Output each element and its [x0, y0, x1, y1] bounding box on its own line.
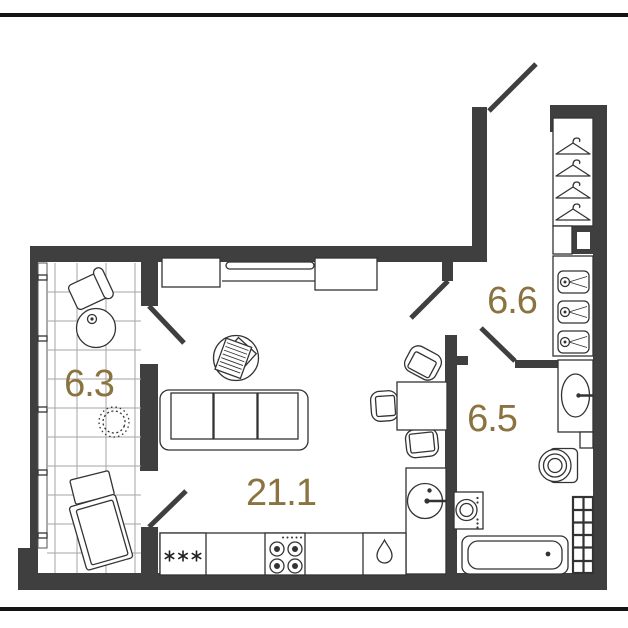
tv-icon: [226, 262, 314, 269]
cup-dot: [90, 317, 93, 320]
floor-plan-svg: 6.3 21.1 6.6 6.5: [0, 0, 628, 628]
hall-living-door-leaf: [411, 281, 448, 318]
dining-chair-left: [370, 390, 399, 422]
toilet: [539, 449, 578, 483]
area-label-living: 21.1: [246, 472, 316, 514]
coffee-table: [214, 336, 259, 381]
area-label-bathroom: 6.5: [467, 398, 517, 440]
chair-back: [401, 343, 444, 384]
freezer-stars-icon: [165, 551, 202, 562]
wall-bottom-left-corner: [18, 548, 38, 590]
wall-bathroom-stub: [457, 356, 468, 365]
sofa: [160, 390, 308, 450]
wall-left: [30, 262, 38, 552]
small-cabinet: [580, 432, 593, 448]
wall-balcony-c: [141, 527, 158, 573]
window-mullion-tick: [38, 336, 47, 341]
bathroom-door-leaf: [481, 328, 515, 361]
window-mullion-tick: [38, 275, 47, 280]
cabinet-left: [162, 258, 220, 287]
balcony-window: [38, 263, 47, 548]
window-mullion-tick: [38, 533, 47, 538]
plant-icon: [99, 407, 129, 437]
window-mullion-tick: [38, 470, 47, 475]
wall-hall-door-stub: [442, 258, 453, 281]
faucet-hub: [424, 498, 429, 503]
bathtub-outer: [462, 536, 568, 574]
cabinet-right: [315, 258, 377, 290]
balcony-door-upper-leaf: [149, 306, 184, 343]
sink-drain: [427, 488, 431, 492]
side-table-top: [77, 309, 116, 348]
window-mullion-tick: [38, 407, 47, 412]
dining-table: [397, 382, 447, 430]
wall-bathroom-left: [445, 335, 457, 575]
wall-entry-left: [472, 107, 487, 262]
page-divider-bottom: [0, 607, 628, 611]
plant-inner: [100, 408, 128, 436]
entrance-door-leaf: [489, 64, 536, 111]
dishwasher: [363, 533, 406, 575]
dining-set: [370, 343, 447, 459]
balcony-chaise: [69, 494, 133, 571]
area-label-hallway: 6.6: [487, 280, 537, 322]
balcony-side-table: [77, 309, 116, 348]
stove: [265, 533, 305, 575]
fridge-freezer: [160, 533, 206, 575]
balcony-door-lower-leaf: [149, 491, 186, 527]
washer-box: [454, 492, 483, 529]
towel-rail-grid: [573, 497, 593, 573]
bathtub-drain: [546, 552, 551, 557]
window-glazing: [38, 263, 47, 548]
sofa-outline: [160, 390, 308, 450]
tv-wall-units: [162, 258, 377, 290]
balcony-armchair: [66, 266, 115, 312]
wall-balcony-b: [140, 364, 158, 471]
area-label-balcony: 6.3: [64, 363, 114, 405]
faucet-hub: [576, 393, 580, 397]
floor-plan-page: 6.3 21.1 6.6 6.5: [0, 0, 628, 628]
wall-balcony-a: [141, 262, 158, 306]
wall-right: [593, 105, 607, 590]
shaft-niche: [577, 232, 590, 249]
dining-chair-bottom: [405, 427, 440, 458]
chaise-outer: [69, 494, 133, 571]
washbasin: [558, 360, 594, 448]
wardrobe-hanger-section: [553, 118, 593, 226]
wardrobe-shelf: [553, 226, 572, 254]
bathroom: [454, 360, 594, 574]
dining-chair-top: [401, 343, 444, 384]
page-divider-top: [0, 13, 628, 17]
wall-top: [30, 246, 487, 262]
bathtub: [462, 536, 568, 574]
washing-machine: [454, 492, 483, 529]
